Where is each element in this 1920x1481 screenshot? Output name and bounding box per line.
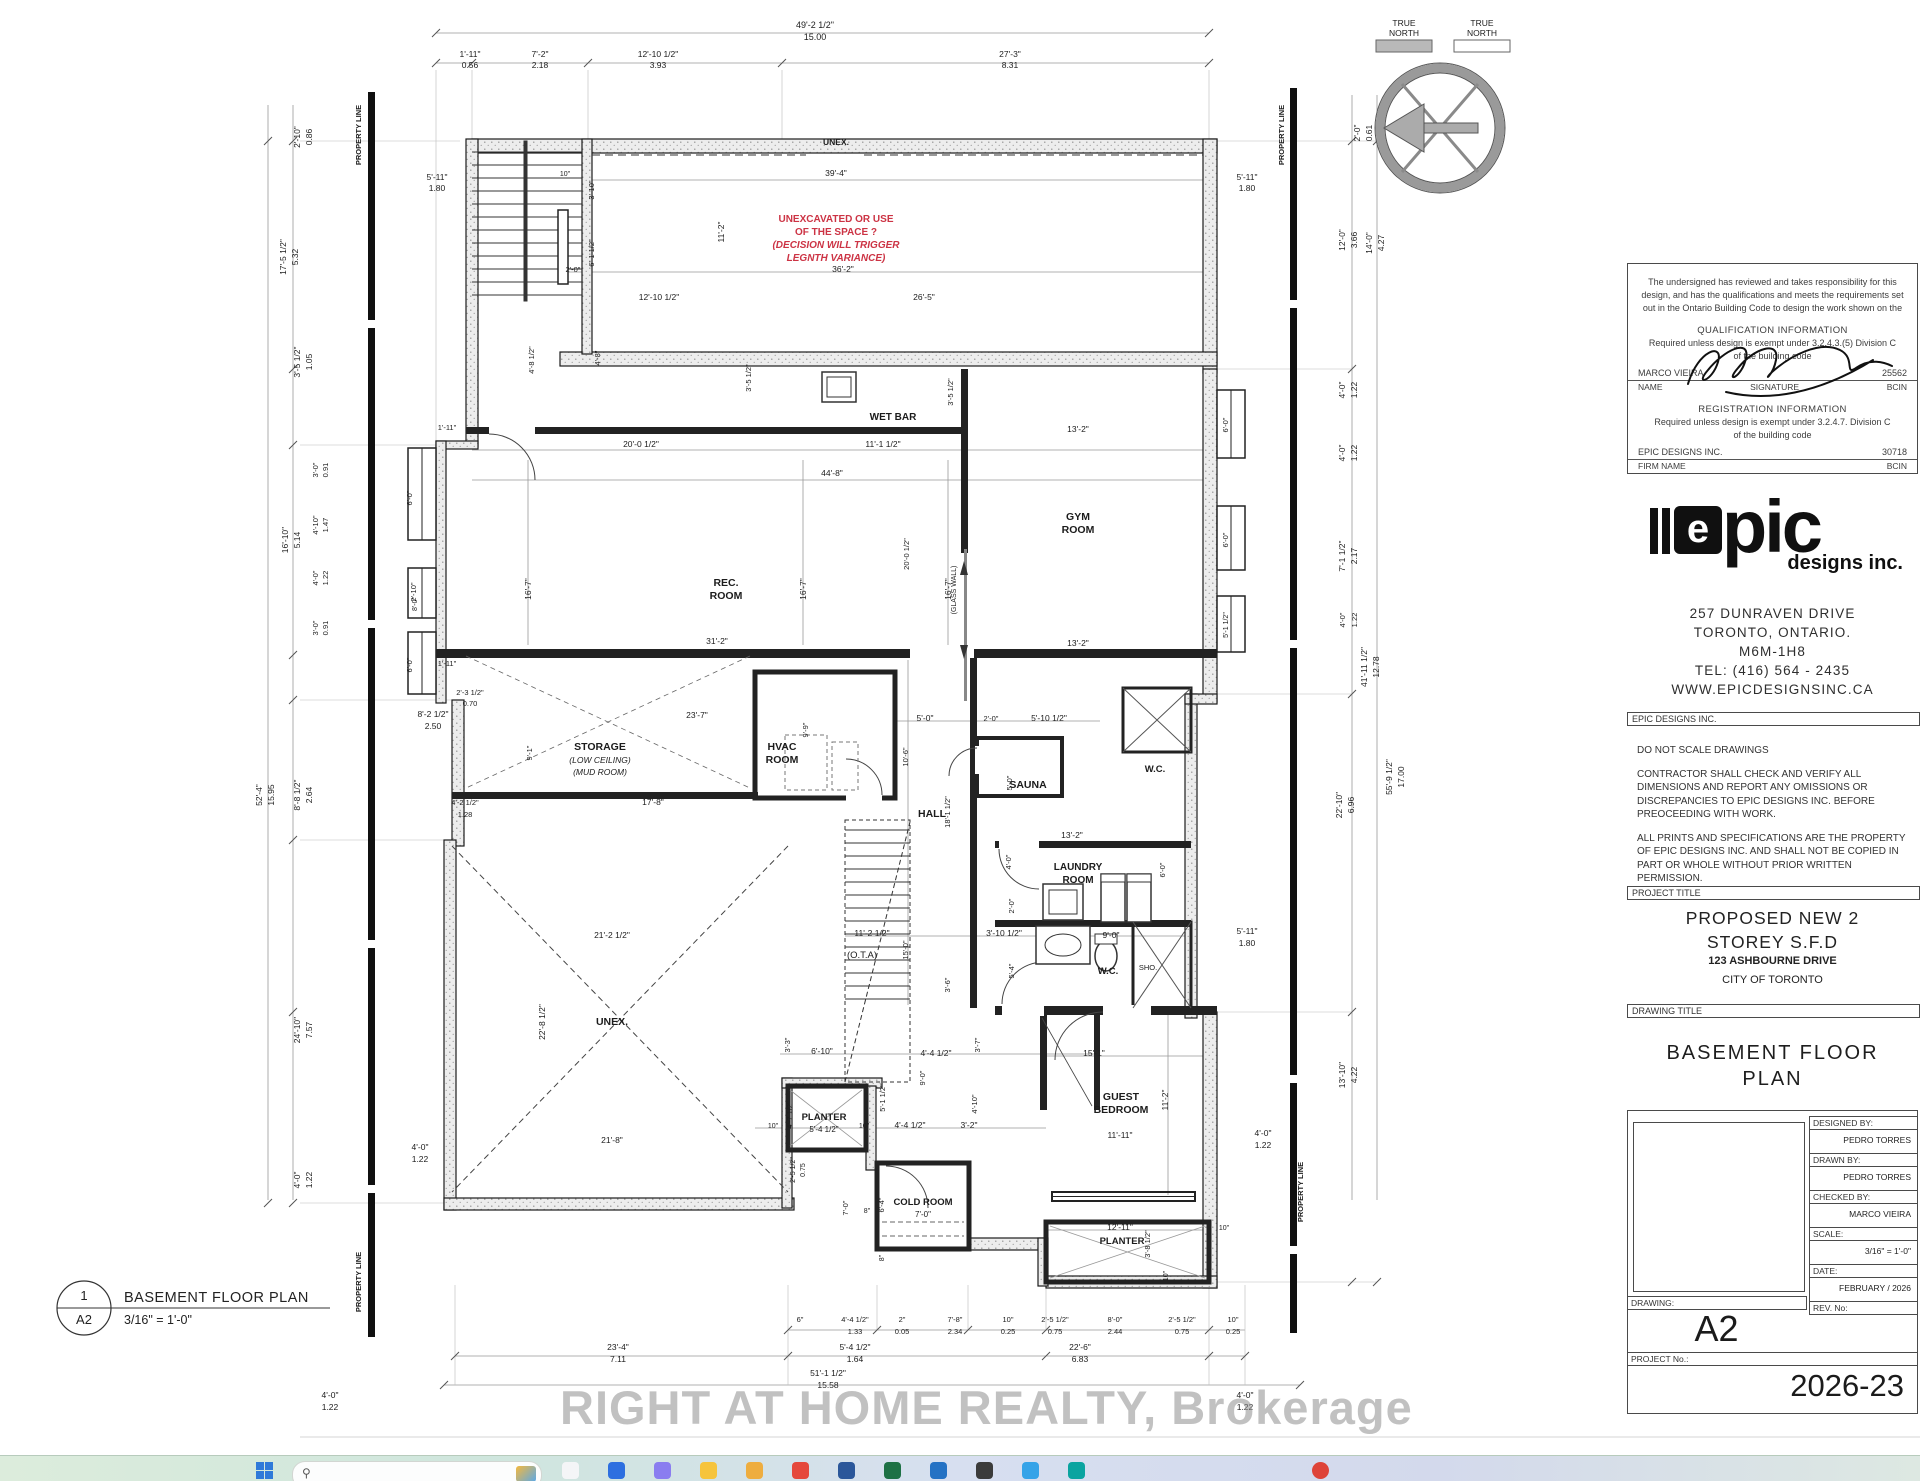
plan-label: 3.93 [650, 60, 667, 70]
plan-label: BEDROOM [1094, 1104, 1149, 1116]
plan-label: 15'-0" [901, 940, 910, 959]
taskbar-icons [562, 1462, 1085, 1479]
plan-label: UNEXCAVATED OR USE [778, 214, 893, 225]
plan-label: 13'-2" [1067, 424, 1089, 434]
plan-label: 4'-0" [311, 570, 320, 585]
plan-label: 12.78 [1371, 656, 1381, 678]
logo-subtext: designs inc. [1787, 552, 1903, 575]
app-icon-file[interactable] [562, 1462, 579, 1479]
plan-label: 51'-1 1/2" [810, 1368, 846, 1378]
plan-label: 3'-5 1/2" [946, 378, 955, 406]
plan-label: 22'-8 1/2" [537, 1004, 547, 1040]
plan-label: 11'-2" [716, 221, 726, 242]
plan-label: 10'-6" [901, 747, 910, 766]
app-icon-word[interactable] [838, 1462, 855, 1479]
plan-label: 8'-8 1/2" [292, 779, 302, 810]
plan-label: 1.28 [458, 810, 473, 819]
plan-label: 2'-5 1/2" [1168, 1315, 1196, 1324]
plan-label: 11'-2 1/2" [854, 928, 889, 938]
search-input[interactable]: ⚲ [292, 1461, 542, 1481]
plan-label: 8.31 [1002, 60, 1019, 70]
company-address: 257 DUNRAVEN DRIVE TORONTO, ONTARIO. M6M… [1627, 604, 1918, 699]
app-icon-powerpoint[interactable] [930, 1462, 947, 1479]
plan-label: TRUE [1470, 18, 1493, 28]
plan-label: 1.80 [1239, 183, 1256, 193]
plan-label: 6'-1 1/2" [587, 239, 596, 267]
qual-req2: of the building code [1628, 350, 1917, 363]
search-highlight-thumb [516, 1466, 536, 1481]
plan-label: 8'-0" [1108, 1315, 1123, 1324]
plan-label: 12'-11" [1107, 1222, 1133, 1232]
plan-label: (LOW CEILING) [569, 755, 631, 765]
plan-label: ROOM [1062, 875, 1093, 886]
plan-label: 10" [1219, 1225, 1230, 1232]
checked-by-value: MARCO VIEIRA [1809, 1203, 1918, 1227]
plan-label: 0.25 [1226, 1327, 1241, 1336]
app-icon-dark[interactable] [976, 1462, 993, 1479]
plan-label: 4'-10" [311, 515, 320, 534]
plan-label: 4'-4 1/2" [920, 1048, 951, 1058]
plan-label: HVAC [768, 741, 797, 753]
logo-e-icon: e [1674, 506, 1722, 554]
plan-label: 0.86 [304, 128, 314, 145]
plan-label: 21'-8" [601, 1135, 623, 1145]
plan-label: 8" [864, 1208, 871, 1215]
plan-label: PROPERTY LINE [1277, 105, 1286, 165]
plan-label: 44'-8" [821, 468, 843, 478]
app-icon-purple[interactable] [654, 1462, 671, 1479]
plan-label: 17'-5 1/2" [278, 239, 288, 275]
plan-label: 1.80 [429, 183, 446, 193]
plan-label: 2'-0" [1352, 125, 1362, 142]
project-city: CITY OF TORONTO [1627, 974, 1918, 986]
qual-intro: The undersigned has reviewed and takes r… [1628, 264, 1917, 315]
plan-label: 22'-6" [1069, 1342, 1091, 1352]
date-value: FEBRUARY / 2026 [1809, 1277, 1918, 1301]
plan-label: 6'-0" [1158, 862, 1167, 877]
plan-label: 3'-5 1/2" [292, 346, 302, 377]
plan-label: 5.32 [290, 248, 300, 265]
checked-by-label: CHECKED BY: [1809, 1190, 1918, 1204]
plan-label: 7'-1 1/2" [1337, 540, 1347, 571]
plan-label: 2'-10" [292, 126, 302, 148]
plan-label: 9'-0" [918, 1070, 927, 1085]
plan-label: 0.91 [321, 621, 330, 636]
plan-label: 0.70 [463, 699, 478, 708]
plan-label: 12'-10 1/2" [639, 292, 680, 302]
plan-label: 41'-11 1/2" [1359, 647, 1369, 687]
plan-label: 0.75 [1175, 1327, 1190, 1336]
callout-sheet: A2 [70, 1312, 98, 1327]
plan-label: 10" [768, 1123, 779, 1130]
plan-label: 5'-0" [1005, 775, 1014, 790]
plan-label: W.C. [1145, 764, 1166, 775]
plan-label: 23'-7" [686, 710, 708, 720]
plan-label: 23'-4" [607, 1342, 629, 1352]
plan-label: 17.00 [1396, 766, 1406, 788]
plan-label: 12'-10 1/2" [638, 49, 679, 59]
plan-label: 6'-10" [811, 1046, 833, 1056]
reg-header: REGISTRATION INFORMATION [1628, 403, 1917, 416]
general-notes: DO NOT SCALE DRAWINGS CONTRACTOR SHALL C… [1637, 744, 1907, 896]
plan-label: 3'-6" [943, 977, 952, 992]
start-button[interactable] [256, 1462, 273, 1479]
plan-label: 8'-2 1/2" [417, 709, 448, 719]
plan-label: 4'-2 1/2" [451, 798, 479, 807]
plan-label: 0.75 [800, 1163, 807, 1177]
plan-label: 4'-7 1/2" [785, 1101, 794, 1129]
drawing-sheet: TRUENORTHTRUENORTHPROPERTY LINEPROPERTY … [0, 0, 1920, 1481]
plan-label: STORAGE [574, 741, 626, 753]
plan-label: 12'-0" [1337, 229, 1347, 251]
plan-label: 9'-9" [801, 722, 810, 737]
plan-label: 16'-10" [280, 527, 290, 553]
drawn-by-value: PEDRO TORRES [1809, 1166, 1918, 1190]
plan-label: 7'-8" [948, 1315, 963, 1324]
plan-label: 4'-0" [1337, 445, 1347, 462]
plan-label: 1.22 [321, 571, 330, 586]
plan-label: 3'-10 1/2" [986, 928, 1022, 938]
plan-label: 2.18 [532, 60, 549, 70]
plan-label: 2.17 [1349, 547, 1359, 564]
plan-label: 2.34 [948, 1327, 963, 1336]
plan-label: (MUD ROOM) [573, 767, 627, 777]
plan-label: SHO. [1139, 963, 1157, 972]
plan-label: 5'-10 1/2" [1031, 713, 1067, 723]
plan-label: 4'-0" [412, 1142, 429, 1152]
plan-label: 22'-10" [1334, 792, 1344, 818]
plan-label: 10" [1002, 1315, 1013, 1324]
plan-label: 15.00 [804, 32, 827, 42]
plan-label: 8" [879, 1254, 886, 1261]
plan-label: 11'-11" [1107, 1130, 1132, 1140]
plan-label: TRUE [1392, 18, 1415, 28]
project-no-label: PROJECT No.: [1627, 1352, 1918, 1366]
plan-label: 2" [899, 1315, 906, 1324]
plan-label: 2'-0" [1007, 898, 1016, 913]
plan-label: 7'-0" [841, 1200, 850, 1215]
north-arrow-icon [1375, 63, 1505, 193]
plan-label: 1.22 [1350, 613, 1359, 628]
plan-label: 3'-0" [311, 462, 320, 477]
firm-row: EPIC DESIGNS INC. 30718 [1628, 446, 1917, 460]
plan-label: COLD ROOM [893, 1197, 952, 1208]
plan-label: 52'-4" [254, 784, 264, 806]
firm-label-row: FIRM NAME BCIN [1628, 460, 1917, 473]
name-row: MARCO VIEIRA 25562 [1628, 367, 1917, 381]
plan-label: UNEX. [823, 137, 849, 147]
plan-label: 17'-8" [642, 797, 664, 807]
x-marks [452, 155, 1205, 1278]
plan-label: 20'-0 1/2" [623, 439, 659, 449]
name-label-row: NAME SIGNATURE BCIN [1628, 381, 1917, 394]
project-address: 123 ASHBOURNE DRIVE [1627, 955, 1918, 967]
firm-name: EPIC DESIGNS INC. [1638, 446, 1723, 459]
plan-label: 3'-2" [961, 1120, 978, 1130]
qual-header: QUALIFICATION INFORMATION [1628, 324, 1917, 337]
plan-label: 18'-1 1/2" [943, 796, 952, 828]
plan-label: 5.14 [292, 531, 302, 548]
plan-label: 10" [1227, 1315, 1238, 1324]
taskbar[interactable]: ⚲ ENG [0, 1455, 1920, 1481]
plan-label: 5'-0" [917, 713, 934, 723]
plan-label: 6'-0" [1221, 532, 1230, 547]
plan-label: 1.22 [412, 1154, 429, 1164]
plan-label: PROPERTY LINE [1296, 1162, 1305, 1222]
plan-label: REC. [713, 577, 738, 589]
plan-label: 4'-0" [1004, 854, 1013, 869]
scale-label: SCALE: [1809, 1227, 1918, 1241]
plan-label: 2'-5 1/2" [1041, 1315, 1069, 1324]
plan-label: ROOM [710, 590, 743, 602]
plan-label: 6'-0" [405, 657, 414, 672]
plan-label: 0.75 [1048, 1327, 1063, 1336]
plan-label: ROOM [766, 754, 799, 766]
plan-label: 4'-4 1/2" [894, 1120, 925, 1130]
plan-label: SAUNA [1009, 779, 1047, 791]
plan-label: 9'-0" [1103, 930, 1120, 940]
plan-label: 1.05 [304, 353, 314, 370]
logo-bar-icon [1650, 508, 1658, 554]
plan-label: PLANTER [802, 1112, 847, 1123]
plan-label: 5'-11" [1236, 926, 1257, 936]
plan-label: WET BAR [870, 412, 917, 423]
true-north-swatches [1376, 40, 1510, 52]
plan-label: W.C. [1098, 966, 1119, 977]
plan-label: 7'-0" [915, 1210, 931, 1219]
plan-label: 14'-0" [1364, 232, 1374, 254]
plan-label: 5'-4 1/2" [809, 1125, 838, 1134]
door-swings [489, 434, 1103, 1208]
plan-label: 13'-2" [1067, 638, 1089, 648]
plan-label: 39'-4" [825, 168, 847, 178]
app-icon-yellow[interactable] [700, 1462, 717, 1479]
plan-label: 1'-11" [438, 659, 457, 668]
plan-label: 7.57 [304, 1021, 314, 1038]
logo-bar-icon [1662, 508, 1670, 554]
plan-label: 27'-3" [999, 49, 1021, 59]
plan-label: 4'-10" [970, 1094, 979, 1113]
plan-label: 8'-0" [412, 597, 419, 611]
plan-label: (GLASS WALL) [951, 566, 958, 615]
plan-label: 1.47 [321, 518, 330, 533]
plan-label: 10" [859, 1123, 870, 1130]
plan-label: 4'-0" [1338, 612, 1347, 627]
plan-label: 55'-9 1/2" [1384, 759, 1394, 795]
plan-label: 20'-0 1/2" [902, 538, 911, 570]
thumbnail-cell [1633, 1122, 1805, 1292]
plan-label: (O.T.A) [847, 950, 877, 961]
plan-label: 6.96 [1346, 796, 1356, 813]
plan-label: 4'-0" [292, 1172, 302, 1189]
plan-label: 0.61 [1364, 124, 1374, 141]
plan-label: 49'-2 1/2" [796, 20, 834, 30]
designer-name: MARCO VIEIRA [1638, 367, 1704, 380]
plan-label: PROPERTY LINE [354, 105, 363, 165]
reg-req2: of the building code [1628, 429, 1917, 442]
plan-label: OF THE SPACE ? [795, 227, 877, 238]
plan-label: 0.25 [1001, 1327, 1016, 1336]
project-number: 2026-23 [1627, 1368, 1904, 1404]
qualification-box: The undersigned has reviewed and takes r… [1627, 263, 1918, 474]
plan-label: 1.22 [322, 1402, 339, 1412]
plan-label: 6.83 [1072, 1354, 1089, 1364]
plan-label: 4'-0" [322, 1390, 339, 1400]
plan-label: 3'-3" [783, 1037, 792, 1052]
drawing-title-bar: DRAWING TITLE [1627, 1004, 1920, 1018]
drawing-number: A2 [1627, 1308, 1806, 1350]
plan-label: 10" [1163, 1270, 1170, 1281]
plan-label: NORTH [1389, 28, 1419, 38]
plan-label: 2.44 [1108, 1327, 1123, 1336]
app-icon-blue[interactable] [608, 1462, 625, 1479]
plan-label: 16'-7" [523, 578, 533, 600]
plan-label: 31'-2" [706, 636, 728, 646]
realty-watermark: RIGHT AT HOME REALTY, Brokerage [560, 1380, 1420, 1435]
scale-value: 3/16" = 1'-0" [1809, 1240, 1918, 1264]
plan-label: 16'-7" [798, 578, 808, 600]
plan-label: 6'-4" [877, 1197, 886, 1212]
plan-label: 3'-0" [311, 620, 320, 635]
plan-label: 11'-2" [1160, 1089, 1170, 1110]
plan-label: 3'-5 1/2" [744, 364, 753, 392]
plan-label: 5'-11" [1236, 172, 1257, 182]
plan-label: 3.66 [1349, 231, 1359, 248]
callout-number: 1 [70, 1288, 98, 1303]
plan-label: 9'-1" [525, 745, 534, 760]
plan-label: 4'-4 1/2" [841, 1315, 869, 1324]
firm-bar: EPIC DESIGNS INC. [1627, 712, 1920, 726]
plan-label: 5'-1 1/2" [878, 1084, 887, 1112]
drawing-title: BASEMENT FLOOR PLAN [1627, 1040, 1918, 1092]
app-icon-excel[interactable] [884, 1462, 901, 1479]
plan-label: 6'-0" [1221, 417, 1230, 432]
plan-label: 0.56 [462, 60, 479, 70]
plan-label: 36'-2" [832, 264, 854, 274]
plan-label: 1.64 [847, 1354, 864, 1364]
plan-label: PLANTER [1100, 1236, 1145, 1247]
app-icon-red[interactable] [792, 1462, 809, 1479]
plan-label: 4'-0" [1337, 382, 1347, 399]
plan-label: 5'-11" [426, 172, 447, 182]
plan-label: 2'-3 1/2" [456, 688, 484, 697]
plan-label: GUEST [1103, 1091, 1140, 1103]
app-icon-tray-red[interactable] [1312, 1462, 1329, 1479]
plan-label: NORTH [1467, 28, 1497, 38]
plan-label: 1.22 [1255, 1140, 1272, 1150]
callout-title: BASEMENT FLOOR PLAN [124, 1290, 309, 1306]
plan-label: 2'-0" [566, 265, 581, 274]
firm-bcin: 30718 [1882, 446, 1907, 459]
plan-label: 2.64 [304, 786, 314, 803]
designed-by-value: PEDRO TORRES [1809, 1129, 1918, 1153]
plan-label: 13'-10" [1337, 1062, 1347, 1088]
app-icon-teal[interactable] [1068, 1462, 1085, 1479]
plan-label: GYM [1066, 511, 1090, 523]
plan-label: 7.11 [610, 1354, 626, 1364]
plan-label: 2'-5 1/2" [790, 1157, 797, 1183]
plan-label: 3'-8 1/2" [1143, 1230, 1152, 1258]
plan-label: 15.95 [266, 784, 276, 806]
reg-req1: Required unless design is exempt under 3… [1628, 416, 1917, 429]
rev-label: REV. No: [1809, 1301, 1918, 1315]
date-label: DATE: [1809, 1264, 1918, 1278]
plan-label: 1'-11" [459, 49, 480, 59]
plan-label: 1.22 [304, 1171, 314, 1188]
callout-scale: 3/16" = 1'-0" [124, 1313, 192, 1327]
plan-label: 1.22 [1349, 381, 1359, 398]
company-website[interactable]: WWW.EPICDESIGNSINC.CA [1627, 680, 1918, 699]
plan-label: 3'-7" [973, 1037, 982, 1052]
plan-label: LAUNDRY [1054, 862, 1103, 873]
plan-label: 4'-0" [1255, 1128, 1272, 1138]
plan-label: 0.05 [895, 1327, 910, 1336]
plan-label: 5'-4 1/2" [839, 1342, 870, 1352]
plan-label: 0.91 [321, 463, 330, 478]
project-title-bar: PROJECT TITLE [1627, 886, 1920, 900]
plan-label: 2'-0" [984, 714, 999, 723]
plan-label: 11'-1 1/2" [865, 439, 900, 449]
plan-label: 24'-10" [292, 1017, 302, 1043]
plan-label: 4.27 [1376, 234, 1386, 251]
plan-label: 7'-2" [532, 49, 549, 59]
plan-label: 21'-2 1/2" [594, 930, 630, 940]
plan-label: ROOM [1062, 524, 1095, 536]
glass-wall [960, 549, 968, 701]
plan-label: 3'-10" [587, 180, 596, 199]
plan-label: 4'-8 1/2" [527, 346, 536, 374]
plan-label: 1.22 [1349, 444, 1359, 461]
project-title: PROPOSED NEW 2 STOREY S.F.D [1627, 906, 1918, 954]
plan-label: 5'-4" [1007, 963, 1016, 978]
app-icon-folder[interactable] [746, 1462, 763, 1479]
plan-label: 15'-1" [1083, 1048, 1105, 1058]
plan-label: UNEX. [596, 1016, 628, 1028]
search-icon: ⚲ [302, 1467, 314, 1479]
plan-label: 4.22 [1349, 1066, 1359, 1083]
designed-by-label: DESIGNED BY: [1809, 1116, 1918, 1130]
designer-bcin: 25562 [1882, 367, 1907, 380]
plan-label: 5'-1 1/2" [1223, 612, 1230, 638]
company-logo: e pic designs inc. [1650, 492, 1905, 580]
drawn-by-label: DRAWN BY: [1809, 1153, 1918, 1167]
plan-label: 26'-5" [913, 292, 935, 302]
app-icon-teams[interactable] [1022, 1462, 1039, 1479]
plan-label: 6'-0" [405, 490, 414, 505]
plan-label: 1.80 [1239, 938, 1256, 948]
plan-label: 10" [560, 171, 571, 178]
plan-label: 13'-2" [1061, 830, 1083, 840]
plan-label: 6" [797, 1315, 804, 1324]
plan-label: (DECISION WILL TRIGGER [772, 240, 900, 251]
plan-label: 1'-11" [438, 423, 457, 432]
plan-label: 2.50 [425, 721, 442, 731]
plan-label: LEGNTH VARIANCE) [787, 253, 886, 264]
qual-req1: Required unless design is exempt under 3… [1628, 337, 1917, 350]
plan-label: PROPERTY LINE [354, 1252, 363, 1312]
plan-label: 1.33 [848, 1327, 863, 1336]
plan-label: 4'-8" [593, 350, 602, 365]
